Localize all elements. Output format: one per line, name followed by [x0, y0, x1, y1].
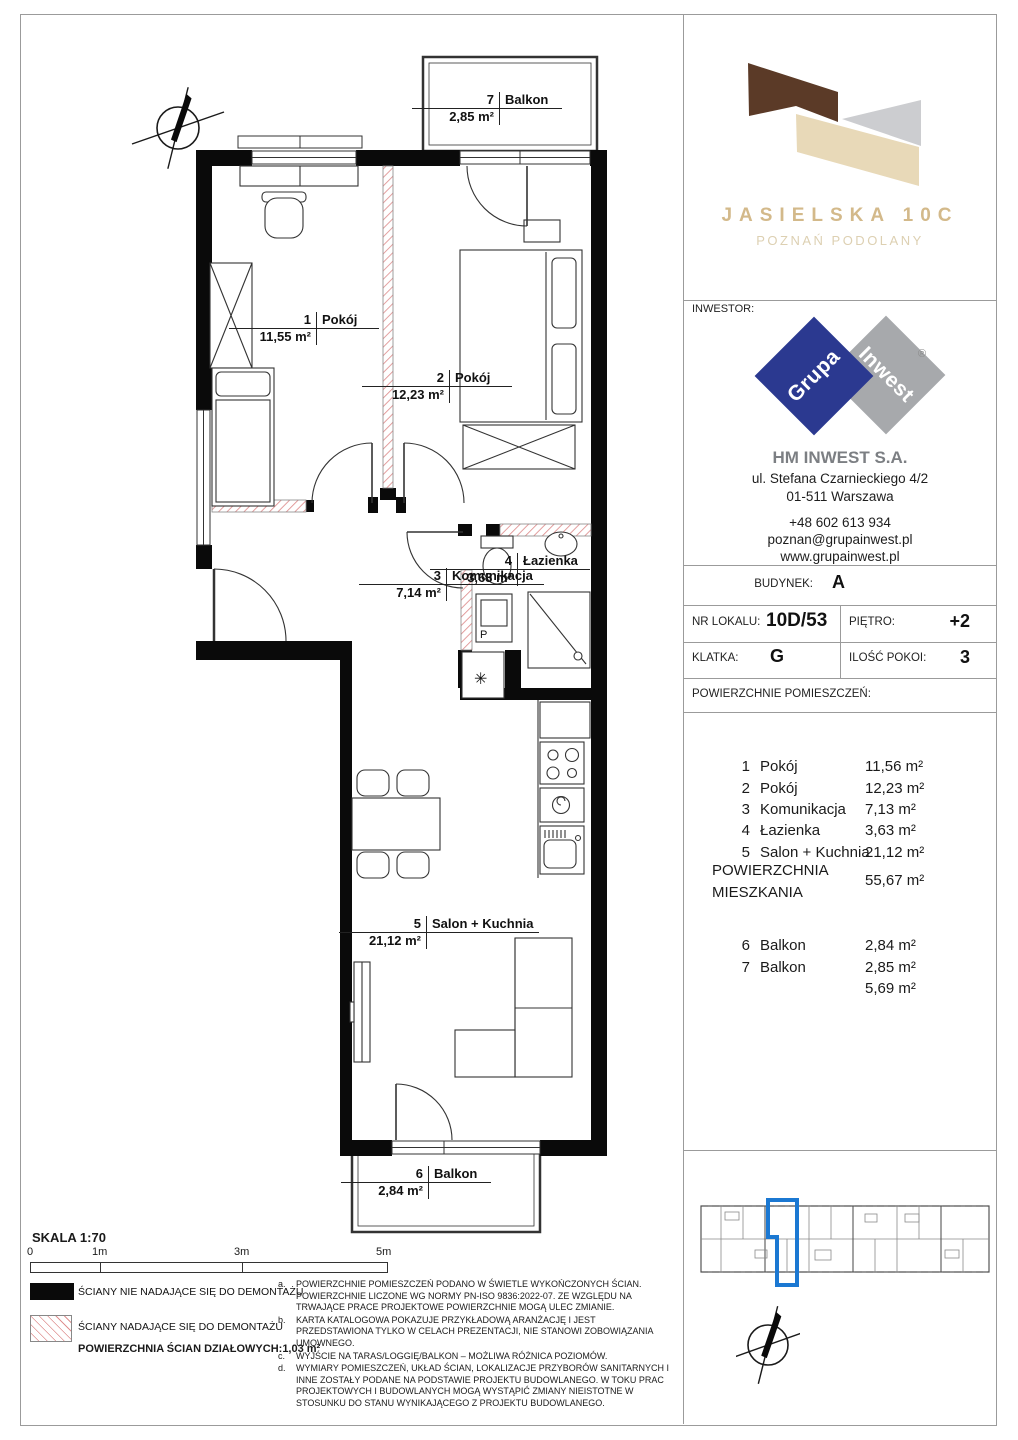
floor-label: PIĘTRO:: [849, 616, 895, 628]
note-key: a.: [278, 1279, 291, 1314]
area-row-value: 3,63 m²: [865, 822, 916, 839]
plan-label-lazienka: 4 Łazienka 3,63 m²: [430, 553, 590, 586]
area-row-no: 3: [690, 801, 750, 818]
scale-tick-0: 0: [27, 1246, 33, 1258]
total-area-value: 55,67 m²: [865, 872, 924, 889]
investor-address-line1: ul. Stefana Czarnieckiego 4/2: [683, 471, 997, 486]
note-text: POWIERZCHNIE POMIESZCZEŃ PODANO W ŚWIETL…: [296, 1279, 672, 1314]
legend-solid-wall-label: ŚCIANY NIE NADAJĄCE SIĘ DO DEMONTAŻU: [78, 1286, 303, 1298]
staircase-label: KLATKA:: [692, 652, 738, 664]
entry-door-arc: [214, 569, 286, 641]
area-row-name: Salon + Kuchnia: [760, 844, 870, 861]
investor-website[interactable]: www.grupainwest.pl: [683, 549, 997, 564]
note-d: d. WYMIARY POMIESZCZEŃ, UKŁAD ŚCIAN, LOK…: [278, 1363, 672, 1409]
brand-word-grupa: Grupa: [783, 345, 845, 407]
room-area: 12,23 m²: [362, 387, 450, 403]
room-name: Balkon: [429, 1166, 491, 1183]
plan-label-pokoj-2: 2 Pokój 12,23 m²: [362, 370, 512, 403]
investor-phone: +48 602 613 934: [683, 515, 997, 530]
chair-icon: [397, 852, 429, 878]
room-area: 3,63 m²: [430, 570, 518, 586]
chair-icon: [397, 770, 429, 796]
shaft-box: ✳: [462, 652, 504, 698]
divider: [683, 678, 997, 679]
note-key: d.: [278, 1363, 291, 1409]
areas-header: POWIERZCHNIE POMIESZCZEŃ:: [692, 688, 871, 700]
balcony-row-value: 2,84 m²: [865, 937, 916, 954]
area-row-value: 21,12 m²: [865, 844, 924, 861]
investor-address-line2: 01-511 Warszawa: [683, 489, 997, 504]
project-logo: [740, 55, 930, 195]
total-area-label-line2: MIESZKANIA: [712, 884, 803, 901]
divider: [683, 712, 997, 713]
building-value: A: [832, 572, 845, 593]
area-row-name: Łazienka: [760, 822, 820, 839]
project-subtitle: POZNAŃ PODOLANY: [683, 233, 997, 248]
room-area: 2,85 m²: [412, 109, 500, 125]
note-c: c. WYJŚCIE NA TARAS/LOGGIĘ/BALKON – MOŻL…: [278, 1351, 672, 1363]
investor-email[interactable]: poznan@grupainwest.pl: [683, 532, 997, 547]
room2-furniture: [460, 220, 582, 469]
compass-icon: [736, 1303, 800, 1387]
scale-tick-1m: 1m: [92, 1246, 107, 1258]
note-key: c.: [278, 1351, 291, 1363]
balcony-row-no: 6: [690, 937, 750, 954]
room-number: 4: [430, 553, 518, 570]
room-area: 11,55 m²: [229, 329, 317, 345]
scale-bar-tick: [100, 1262, 101, 1273]
light-point-symbol: ✳: [474, 671, 487, 688]
area-row-no: 1: [690, 758, 750, 775]
dining-table-icon: [352, 798, 440, 850]
catalog-card-page: P: [0, 0, 1018, 1440]
rooms-count-value: 3: [900, 647, 970, 668]
legend-demountable-wall-label: ŚCIANY NADAJĄCE SIĘ DO DEMONTAŻU: [78, 1321, 283, 1333]
balcony-row-name: Balkon: [760, 959, 806, 976]
building-label: BUDYNEK:: [683, 578, 813, 590]
legend-demountable-wall-swatch: [30, 1315, 72, 1342]
balconies-total-value: 5,69 m²: [865, 980, 916, 997]
room-number: 5: [339, 916, 427, 933]
divider: [683, 565, 997, 566]
washer-symbol: P: [480, 629, 487, 641]
salon-furniture: [350, 700, 590, 1077]
plan-label-balkon-6: 6 Balkon 2,84 m²: [341, 1166, 491, 1199]
total-area-label-line1: POWIERZCHNIA: [712, 862, 829, 879]
room-number: 6: [341, 1166, 429, 1183]
scale-label: SKALA 1:70: [32, 1230, 106, 1245]
room-area: 2,84 m²: [341, 1183, 429, 1199]
area-row-no: 2: [690, 780, 750, 797]
area-row-name: Komunikacja: [760, 801, 846, 818]
balcony-row-no: 7: [690, 959, 750, 976]
building-overview-plan: [695, 1190, 995, 1300]
room-number: 7: [412, 92, 500, 109]
note-text: WYJŚCIE NA TARAS/LOGGIĘ/BALKON – MOŻLIWA…: [296, 1351, 607, 1363]
plan-label-pokoj-1: 1 Pokój 11,55 m²: [229, 312, 379, 345]
room-name: Pokój: [317, 312, 379, 329]
room-name: Łazienka: [518, 553, 590, 570]
scale-tick-3m: 3m: [234, 1246, 249, 1258]
note-text: KARTA KATALOGOWA POKAZUJE PRZYKŁADOWĄ AR…: [296, 1315, 672, 1350]
area-row-value: 12,23 m²: [865, 780, 924, 797]
room-number: 1: [229, 312, 317, 329]
scale-tick-5m: 5m: [376, 1246, 391, 1258]
scale-bar-tick: [242, 1262, 243, 1273]
room-name: Pokój: [450, 370, 512, 387]
area-row-value: 11,56 m²: [865, 758, 923, 775]
staircase-value: G: [770, 646, 784, 667]
table-column-divider: [840, 605, 841, 678]
notes-block: a. POWIERZCHNIE POMIESZCZEŃ PODANO W ŚWI…: [278, 1279, 672, 1411]
note-text: WYMIARY POMIESZCZEŃ, UKŁAD ŚCIAN, LOKALI…: [296, 1363, 672, 1409]
room-number: 2: [362, 370, 450, 387]
scale-bar: [30, 1262, 388, 1273]
project-title: JASIELSKA 10C: [683, 205, 997, 227]
registered-mark: ®: [918, 348, 926, 360]
plan-label-salon-kuchnia: 5 Salon + Kuchnia 21,12 m²: [339, 916, 539, 949]
note-a: a. POWIERZCHNIE POMIESZCZEŃ PODANO W ŚWI…: [278, 1279, 672, 1314]
chair-icon: [357, 770, 389, 796]
stove-icon: [540, 742, 584, 784]
floor-plan: P: [0, 0, 683, 1260]
area-row-name: Pokój: [760, 780, 798, 797]
floor-value: +2: [900, 611, 970, 632]
area-row-no: 4: [690, 822, 750, 839]
note-b: b. KARTA KATALOGOWA POKAZUJE PRZYKŁADOWĄ…: [278, 1315, 672, 1350]
toilet-icon: [481, 536, 513, 548]
room-area: 7,14 m²: [359, 585, 447, 601]
legend-solid-wall-swatch: [30, 1283, 74, 1300]
investor-label: INWESTOR:: [692, 303, 754, 315]
room-name: Salon + Kuchnia: [427, 916, 539, 933]
unit-number-label: NR LOKALU:: [692, 616, 760, 628]
divider: [683, 1150, 997, 1151]
room-area: 21,12 m²: [339, 933, 427, 949]
area-row-no: 5: [690, 844, 750, 861]
room-name: Balkon: [500, 92, 562, 109]
note-key: b.: [278, 1315, 291, 1350]
logo-brown-shape: [748, 63, 838, 122]
balcony-row-name: Balkon: [760, 937, 806, 954]
balcony-row-value: 2,85 m²: [865, 959, 916, 976]
unit-number-value: 10D/53: [766, 610, 827, 632]
area-row-value: 7,13 m²: [865, 801, 916, 818]
partition-walls-label: POWIERZCHNIA ŚCIAN DZIAŁOWYCH:: [78, 1343, 282, 1355]
investor-company: HM INWEST S.A.: [683, 448, 997, 468]
chair-icon: [357, 852, 389, 878]
plan-label-balkon-7: 7 Balkon 2,85 m²: [412, 92, 562, 125]
area-row-name: Pokój: [760, 758, 798, 775]
divider: [683, 300, 997, 301]
